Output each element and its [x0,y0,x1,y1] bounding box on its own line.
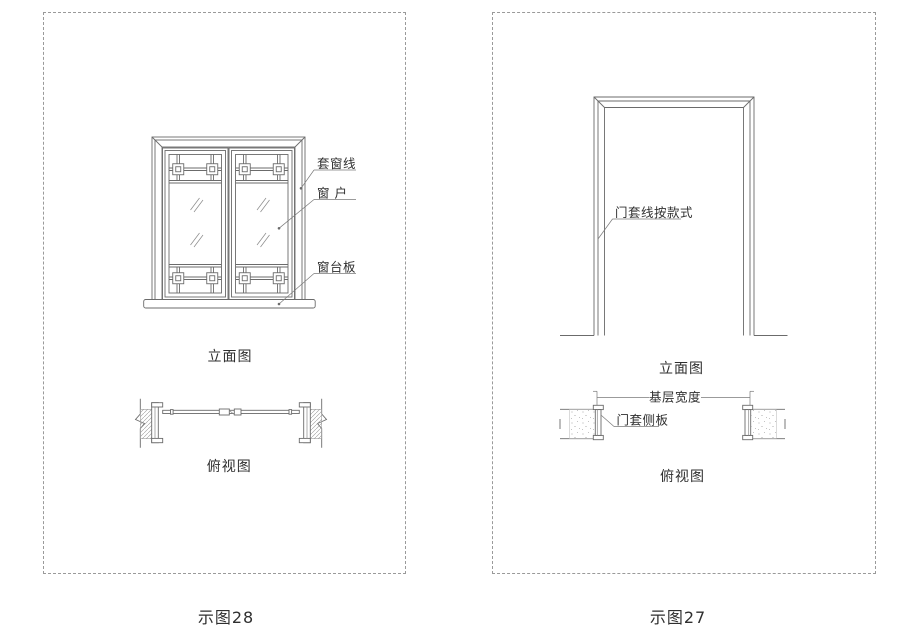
annotation-sill-board: 窗台板 [278,260,356,306]
frame-tick-right [289,410,292,415]
leader-dot [278,227,281,230]
door-detail-panel: 门套线按款式 立面图 基层宽度 [492,12,876,574]
frame-tick-left [171,410,174,415]
figure-label-27: 示图27 [650,604,706,628]
plan-caption: 俯视图 [207,459,252,475]
window-plan-view [136,399,327,448]
figure-label-28: 示图28 [198,604,254,628]
casing-style-label: 门套线按款式 [615,205,693,220]
plan-caption: 俯视图 [660,469,705,485]
windowsill-board [144,300,316,309]
dimension-base-width: 基层宽度 [593,390,754,406]
casing-plan-left [152,403,163,443]
leader-dot [278,303,281,306]
sill-board-label: 窗台板 [317,260,356,275]
window-leaf-left [163,148,229,300]
window-drawing: 套窗线 窗 户 窗台板 立面图 [44,13,405,573]
drawing-sheet: { "colors": { "line": "#6b6b6b", "text":… [0,0,900,636]
window-label: 窗 户 [317,186,347,201]
meeting-stile-right [234,409,241,415]
door-casing-inner [605,108,744,336]
door-plan-view: 基层宽度 [560,390,785,440]
base-width-label: 基层宽度 [649,390,701,405]
elevation-caption: 立面图 [208,349,253,365]
elevation-caption: 立面图 [659,361,704,377]
wall-plan-left [560,409,595,438]
meeting-stile-left [219,409,229,415]
door-drawing: 门套线按款式 立面图 基层宽度 [493,13,875,573]
window-detail-panel: 套窗线 窗 户 窗台板 立面图 [43,12,406,574]
casing-plan-right [299,403,310,443]
window-elevation [144,137,316,308]
annotation-window: 窗 户 [278,186,356,230]
annotation-side-panel: 门套侧板 [602,413,669,428]
leader-dot [300,187,303,190]
casing-line-label: 套窗线 [317,156,356,171]
side-panel-label: 门套侧板 [617,413,669,428]
annotation-casing-style: 门套线按款式 [598,205,693,239]
wall-plan-right [750,409,785,438]
